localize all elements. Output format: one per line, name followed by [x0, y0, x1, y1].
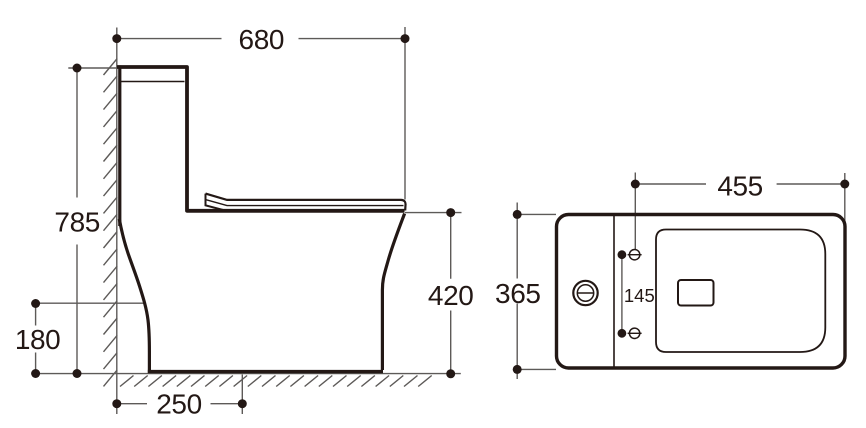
svg-text:680: 680 — [239, 24, 285, 55]
svg-text:420: 420 — [428, 280, 474, 311]
svg-text:455: 455 — [717, 170, 763, 201]
svg-text:365: 365 — [495, 278, 541, 309]
svg-text:250: 250 — [156, 388, 202, 419]
svg-text:145: 145 — [624, 285, 655, 306]
svg-text:785: 785 — [54, 206, 100, 237]
svg-text:180: 180 — [15, 324, 61, 355]
